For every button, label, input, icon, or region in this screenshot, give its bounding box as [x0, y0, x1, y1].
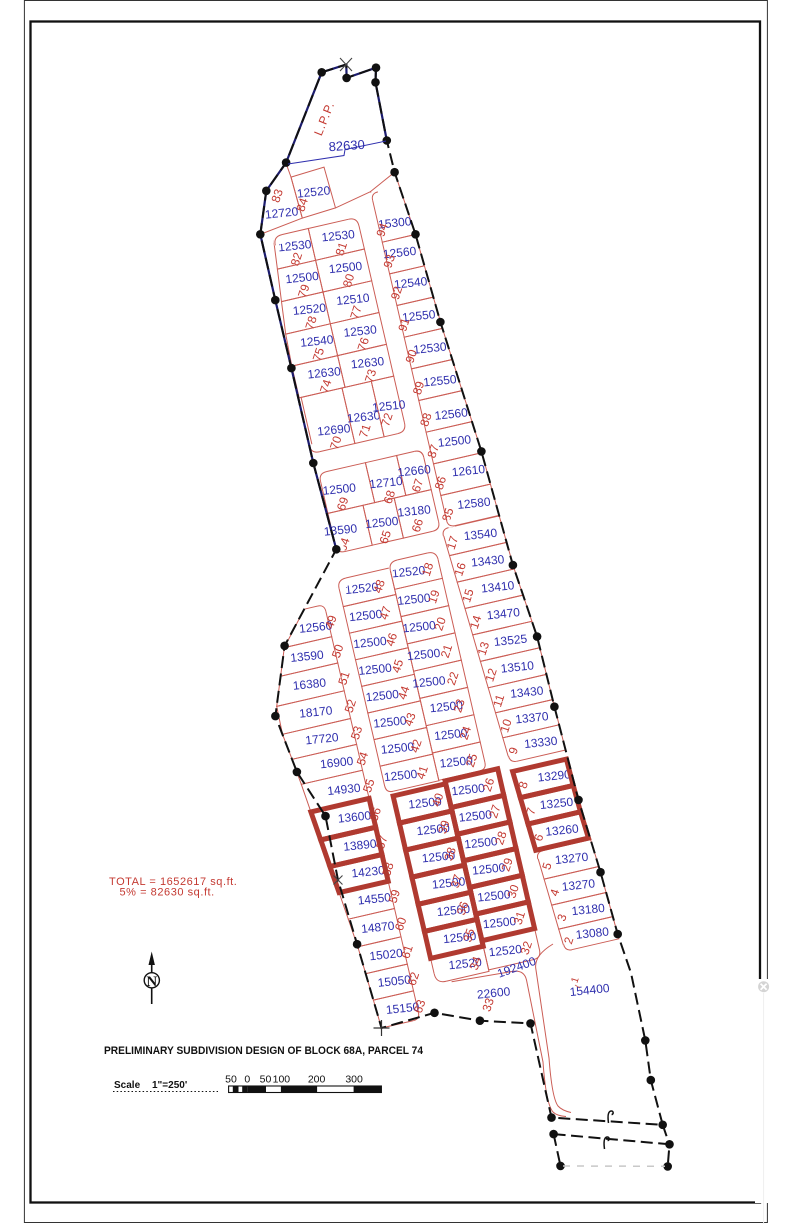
svg-text:18: 18 — [419, 561, 437, 578]
svg-text:12560: 12560 — [434, 405, 469, 422]
svg-text:53: 53 — [348, 724, 366, 741]
svg-text:43: 43 — [401, 711, 419, 728]
svg-text:13525: 13525 — [493, 632, 528, 649]
svg-text:45: 45 — [389, 657, 407, 674]
svg-text:11: 11 — [490, 692, 507, 708]
svg-text:26: 26 — [480, 776, 498, 793]
svg-text:59: 59 — [386, 887, 404, 904]
svg-text:50: 50 — [260, 1074, 272, 1086]
svg-text:18170: 18170 — [298, 703, 333, 720]
svg-text:38: 38 — [441, 845, 459, 862]
svg-text:41: 41 — [413, 764, 431, 781]
svg-text:60: 60 — [392, 915, 410, 932]
svg-text:82630: 82630 — [328, 137, 365, 154]
svg-text:54: 54 — [354, 750, 372, 767]
svg-text:20: 20 — [431, 615, 449, 632]
svg-text:21: 21 — [438, 642, 456, 659]
svg-text:100: 100 — [273, 1074, 291, 1086]
svg-text:23: 23 — [450, 697, 468, 714]
svg-text:10: 10 — [497, 717, 515, 734]
svg-text:66: 66 — [409, 517, 427, 534]
svg-text:22600: 22600 — [476, 984, 511, 1001]
svg-text:12610: 12610 — [451, 462, 486, 479]
svg-text:88: 88 — [417, 411, 435, 428]
svg-text:13180: 13180 — [571, 901, 606, 918]
svg-text:70: 70 — [327, 434, 345, 451]
svg-text:1: 1 — [570, 975, 582, 984]
svg-text:15: 15 — [459, 587, 477, 604]
svg-text:83: 83 — [268, 187, 286, 204]
svg-text:1"=250': 1"=250' — [152, 1080, 187, 1091]
svg-text:24: 24 — [457, 724, 475, 741]
svg-text:N: N — [146, 974, 157, 990]
svg-text:13080: 13080 — [575, 924, 610, 941]
svg-text:12500: 12500 — [412, 673, 447, 690]
svg-text:16: 16 — [451, 560, 469, 577]
svg-text:12580: 12580 — [457, 495, 492, 512]
svg-text:22: 22 — [444, 670, 462, 687]
svg-text:13590: 13590 — [290, 648, 325, 665]
svg-text:28: 28 — [492, 829, 510, 846]
svg-text:40: 40 — [429, 791, 447, 808]
svg-text:13540: 13540 — [463, 526, 498, 543]
svg-text:30: 30 — [504, 883, 522, 900]
svg-text:50: 50 — [225, 1074, 237, 1086]
svg-text:12500: 12500 — [364, 514, 399, 531]
svg-text:42: 42 — [407, 737, 425, 754]
svg-text:13260: 13260 — [545, 821, 580, 838]
svg-text:14930: 14930 — [327, 781, 362, 798]
svg-text:13270: 13270 — [561, 876, 596, 893]
svg-text:50: 50 — [329, 642, 347, 659]
svg-text:12510: 12510 — [371, 397, 406, 414]
svg-text:17: 17 — [444, 534, 462, 551]
svg-text:16900: 16900 — [319, 754, 354, 771]
svg-text:72: 72 — [378, 411, 396, 428]
svg-text:63: 63 — [411, 998, 429, 1015]
svg-text:19: 19 — [425, 588, 443, 605]
svg-text:65: 65 — [377, 528, 395, 545]
svg-text:13370: 13370 — [515, 709, 550, 726]
svg-text:48: 48 — [370, 578, 388, 595]
svg-text:31: 31 — [511, 909, 529, 926]
svg-text:13430: 13430 — [509, 683, 544, 700]
svg-text:55: 55 — [360, 777, 378, 794]
svg-text:PRELIMINARY SUBDIVISION DESI: PRELIMINARY SUBDIVISION DESIGN OF BLOCK … — [104, 1045, 424, 1057]
svg-text:12660: 12660 — [397, 462, 432, 479]
svg-text:13890: 13890 — [343, 836, 378, 853]
svg-text:14870: 14870 — [360, 919, 395, 936]
svg-text:34: 34 — [467, 954, 485, 971]
svg-text:25: 25 — [463, 752, 481, 769]
svg-text:27: 27 — [486, 803, 504, 820]
svg-text:200: 200 — [308, 1074, 326, 1086]
svg-text:12: 12 — [482, 666, 500, 683]
svg-text:Scale: Scale — [114, 1080, 141, 1091]
svg-text:62: 62 — [405, 970, 423, 987]
svg-text:47: 47 — [377, 604, 395, 621]
svg-text:13470: 13470 — [486, 605, 521, 622]
svg-text:13330: 13330 — [523, 734, 558, 751]
svg-text:86: 86 — [432, 474, 450, 491]
svg-text:12500: 12500 — [358, 661, 393, 678]
svg-text:71: 71 — [356, 422, 374, 439]
svg-text:14: 14 — [467, 613, 485, 630]
svg-text:52: 52 — [342, 697, 360, 714]
svg-text:12500: 12500 — [406, 646, 441, 663]
svg-text:13510: 13510 — [500, 658, 535, 675]
svg-text:0: 0 — [244, 1074, 250, 1086]
svg-text:13410: 13410 — [480, 578, 515, 595]
svg-text:46: 46 — [383, 631, 401, 648]
svg-text:44: 44 — [395, 684, 413, 701]
svg-text:13: 13 — [475, 640, 493, 657]
svg-text:17720: 17720 — [305, 730, 340, 747]
svg-text:13250: 13250 — [539, 795, 574, 812]
svg-text:61: 61 — [398, 943, 416, 960]
svg-text:13180: 13180 — [397, 502, 432, 519]
svg-text:12500: 12500 — [322, 480, 357, 497]
svg-text:49: 49 — [322, 613, 340, 630]
svg-text:300: 300 — [345, 1074, 363, 1086]
svg-text:51: 51 — [335, 669, 353, 686]
svg-text:L.P.P.: L.P.P. — [311, 99, 337, 137]
svg-text:29: 29 — [498, 856, 516, 873]
svg-text:12500: 12500 — [437, 432, 472, 449]
svg-text:13270: 13270 — [554, 850, 589, 867]
svg-text:13430: 13430 — [470, 552, 505, 569]
svg-text:5% = 82630 sq.ft.: 5% = 82630 sq.ft. — [120, 887, 215, 899]
svg-text:12550: 12550 — [423, 372, 458, 389]
svg-text:16380: 16380 — [292, 675, 327, 692]
